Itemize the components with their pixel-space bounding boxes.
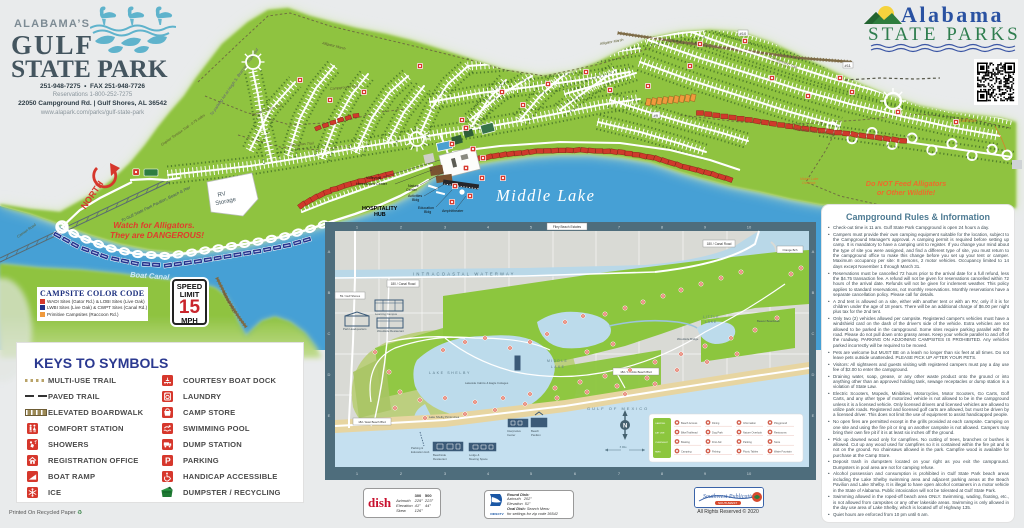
svg-text:182 / East Beach Blvd: 182 / East Beach Blvd — [358, 420, 386, 424]
svg-text:Restaurant: Restaurant — [433, 457, 447, 461]
svg-text:PARK: PARK — [655, 451, 661, 454]
svg-text:MIDDLE: MIDDLE — [547, 359, 568, 363]
svg-text:10: 10 — [747, 471, 752, 476]
svg-text:#9: #9 — [654, 113, 659, 118]
svg-text:C: C — [328, 331, 331, 336]
svg-text:Alligator Marsh: Alligator Marsh — [598, 38, 623, 46]
svg-text:They are DANGEROUS!: They are DANGEROUS! — [110, 230, 204, 240]
svg-text:Volleyball: Volleyball — [366, 176, 381, 180]
svg-text:Woodside Bridge: Woodside Bridge — [677, 337, 699, 341]
svg-text:Watch for Alligators.: Watch for Alligators. — [113, 220, 194, 230]
svg-text:Pavilion: Pavilion — [531, 433, 541, 437]
svg-text:Do NOT Feed Alligators: Do NOT Feed Alligators — [866, 179, 946, 188]
svg-text:Learning Campus: Learning Campus — [375, 312, 398, 316]
svg-text:Lakeside Cabins & Eagle Cottag: Lakeside Cabins & Eagle Cottages — [465, 381, 509, 385]
svg-text:Orange Bch: Orange Bch — [783, 248, 798, 252]
svg-text:Woodside Restaurant: Woodside Restaurant — [377, 329, 404, 333]
svg-text:or Other Wildlife!: or Other Wildlife! — [877, 188, 936, 197]
svg-text:Meeting Space: Meeting Space — [469, 457, 488, 461]
svg-text:Picnic Tables: Picnic Tables — [743, 450, 759, 454]
svg-text:10: 10 — [747, 225, 752, 230]
svg-text:A: A — [328, 249, 331, 254]
svg-text:DAY USE: DAY USE — [655, 432, 665, 435]
svg-text:E: E — [328, 413, 331, 418]
svg-text:Park Headquarters: Park Headquarters — [343, 327, 367, 331]
svg-text:Nature Overlook: Nature Overlook — [743, 431, 763, 435]
svg-text:Overlook: Overlook — [802, 181, 816, 185]
svg-text:Trailhead: Trailhead — [958, 118, 977, 123]
svg-text:#10: #10 — [740, 31, 747, 36]
svg-text:Dining: Dining — [712, 421, 720, 425]
svg-text:C: C — [812, 331, 815, 336]
svg-text:CAMPING: CAMPING — [655, 422, 666, 425]
svg-text:Middle Lake: Middle Lake — [495, 186, 595, 205]
svg-text:B: B — [328, 290, 331, 295]
svg-text:SOUTHWEST: SOUTHWEST — [718, 501, 737, 505]
svg-text:Information: Information — [743, 421, 757, 425]
svg-text:Water Fountain: Water Fountain — [774, 450, 792, 454]
svg-text:LAKE SHELBY: LAKE SHELBY — [429, 371, 471, 375]
svg-text:180 / Canal Road: 180 / Canal Road — [391, 282, 416, 286]
svg-text:D: D — [328, 372, 331, 377]
svg-text:Camping: Camping — [681, 450, 692, 454]
svg-text:59 / Gulf Shores: 59 / Gulf Shores — [340, 294, 361, 298]
svg-text:.5 Mile: .5 Mile — [619, 445, 627, 449]
svg-text:#11: #11 — [845, 63, 852, 68]
svg-text:Bldg: Bldg — [424, 210, 431, 214]
svg-text:Education Hub: Education Hub — [411, 450, 430, 454]
svg-text:OVERNIGHT: OVERNIGHT — [655, 442, 669, 444]
svg-text:P: P — [165, 455, 171, 465]
svg-text:First Aid: First Aid — [712, 440, 722, 444]
svg-text:Lake Shelby Picnic Area: Lake Shelby Picnic Area — [429, 415, 460, 419]
svg-text:Bldg: Bldg — [412, 198, 419, 202]
svg-text:Bike/Trailhead: Bike/Trailhead — [681, 431, 698, 435]
svg-text:GULF OF MEXICO: GULF OF MEXICO — [587, 406, 649, 411]
svg-text:Southwest Publications: Southwest Publications — [703, 494, 760, 500]
svg-text:A: A — [812, 249, 815, 254]
svg-text:Center: Center — [507, 433, 515, 437]
svg-text:180 / Canal Road: 180 / Canal Road — [707, 242, 732, 246]
svg-text:LAKE: LAKE — [551, 365, 565, 369]
svg-text:Fishing: Fishing — [712, 450, 721, 454]
svg-text:HUB: HUB — [374, 212, 386, 218]
svg-text:Amphitheater: Amphitheater — [442, 209, 464, 213]
svg-text:Horseshoes Center: Horseshoes Center — [356, 182, 388, 186]
svg-text:B: B — [812, 290, 815, 295]
svg-text:Beach Access: Beach Access — [681, 421, 698, 425]
svg-text:Store: Store — [774, 440, 781, 444]
svg-text:Playground: Playground — [774, 421, 788, 425]
svg-text:Filey Beach Estates: Filey Beach Estates — [553, 225, 582, 229]
svg-text:Restrooms: Restrooms — [774, 431, 787, 435]
svg-text:N: N — [623, 424, 627, 430]
svg-text:E: E — [812, 413, 815, 418]
svg-text:D: D — [812, 372, 815, 377]
svg-text:Parking: Parking — [743, 440, 752, 444]
svg-text:182 / Perdido Beach Blvd: 182 / Perdido Beach Blvd — [620, 370, 652, 374]
svg-text:Boating: Boating — [681, 440, 690, 444]
svg-text:Dog Park: Dog Park — [712, 431, 724, 435]
svg-text:LITTLE: LITTLE — [703, 315, 719, 319]
svg-text:LAKE: LAKE — [705, 320, 717, 324]
svg-text:Center: Center — [406, 188, 418, 192]
